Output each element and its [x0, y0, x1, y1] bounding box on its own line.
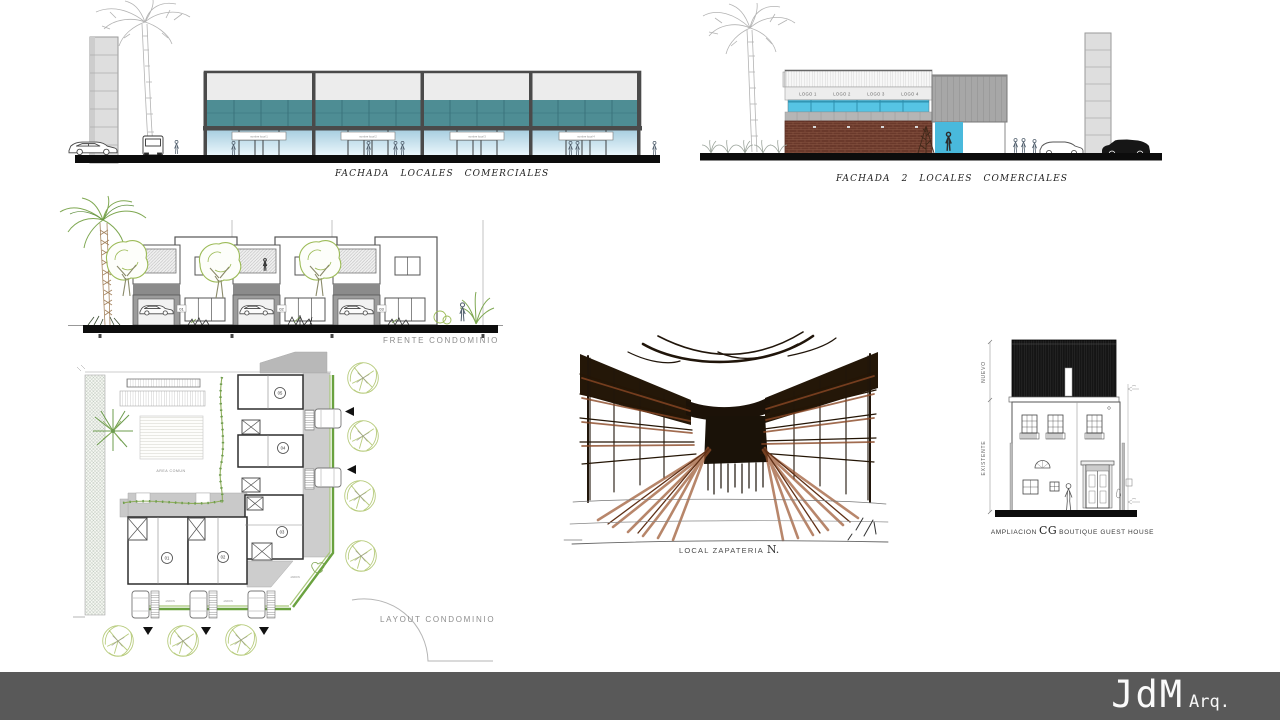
shrub-icons [702, 140, 787, 153]
sign-label: nombre local 3 [468, 135, 486, 139]
ground-line [700, 153, 1162, 161]
unit-label: 01 [179, 307, 184, 312]
street-curb [352, 599, 493, 661]
townhouse-units: 01 02 03 [133, 237, 437, 325]
unit-label: 03 [379, 307, 384, 312]
jardin-label: JARDIN [165, 599, 175, 603]
entry-door [1081, 461, 1114, 508]
caption-layout: LAYOUT CONDOMINIO [380, 615, 495, 624]
existing-facade [1010, 384, 1140, 512]
firm-logo-main: JdM [1111, 673, 1184, 716]
caption-frente: FRENTE CONDOMINIO [383, 336, 499, 345]
ground-line [83, 325, 498, 333]
common-area: AREA COMUN [120, 379, 205, 473]
firm-logo-suffix: Arq. [1189, 692, 1230, 712]
unit-label: 01 [165, 556, 170, 561]
logo-label: LOGO 2 [833, 91, 851, 96]
person-icon [460, 303, 465, 321]
new-addition-volume [1012, 340, 1116, 397]
unit-blocks [128, 375, 303, 584]
ground-line [995, 510, 1137, 517]
commercial-building-2-elevation: LOGO 1 LOGO 2 LOGO 3 LOGO 4 [783, 70, 1007, 155]
phase-dimension: NUEVO EXISTENTE [981, 340, 992, 514]
sign-label: nombre local 1 [250, 135, 268, 139]
caption-guesthouse: AMPLIACIONCGBOUTIQUE GUEST HOUSE [980, 524, 1165, 537]
drawing-fachada-locales-1: nombre local 1 nombre local 2 nombre loc… [50, 2, 670, 190]
footer-bar: JdM Arq. [0, 672, 1280, 720]
logo-label: LOGO 1 [799, 91, 817, 96]
logo-label: LOGO 3 [867, 91, 885, 96]
caption-fachada2: FACHADA 2 LOCALES COMERCIALES [836, 174, 1068, 184]
ground-line [75, 155, 660, 163]
sign-label: nombre local 2 [359, 135, 377, 139]
drawing-guesthouse-elevation: NUEVO EXISTENTE [976, 332, 1166, 544]
parking-bottom [132, 591, 275, 618]
unit-label: 04 [281, 446, 286, 451]
area-comun-label: AREA COMUN [156, 469, 185, 473]
sketch-right-soffit [765, 352, 878, 423]
jardin-label: JARDIN [290, 575, 300, 579]
presentation-slide: nombre local 1 nombre local 2 nombre loc… [0, 0, 1280, 720]
firm-logo: JdM Arq. [1111, 673, 1230, 716]
caption-zapateria: LOCAL ZAPATERIA N. [679, 543, 779, 556]
jardin-label: JARDIN [223, 599, 233, 603]
drawing-fachada-locales-2: LOGO 1 LOGO 2 LOGO 3 LOGO 4 [695, 2, 1170, 194]
van-icon [143, 136, 163, 156]
unit-label: 03 [280, 530, 285, 535]
drawing-frente-condominio: 01 02 03 [48, 196, 503, 346]
unit-label: 02 [279, 307, 284, 312]
signage-tower [1085, 33, 1111, 155]
existente-label: EXISTENTE [981, 441, 987, 476]
palm-tree-icon [703, 3, 795, 152]
unit-label: 02 [221, 555, 226, 560]
slatted-volume [932, 75, 1007, 122]
logo-label: LOGO 4 [901, 91, 919, 96]
commercial-building-elevation: nombre local 1 nombre local 2 nombre loc… [203, 72, 642, 157]
unit-label: 05 [278, 391, 283, 396]
brick-wall [785, 121, 932, 155]
caption-fachada1: FACHADA LOCALES COMERCIALES [335, 169, 549, 179]
level-markers [1126, 384, 1140, 512]
drawing-zapateria-sketch [558, 322, 898, 562]
nuevo-label: NUEVO [981, 361, 987, 383]
sign-label: nombre local 4 [577, 135, 595, 139]
